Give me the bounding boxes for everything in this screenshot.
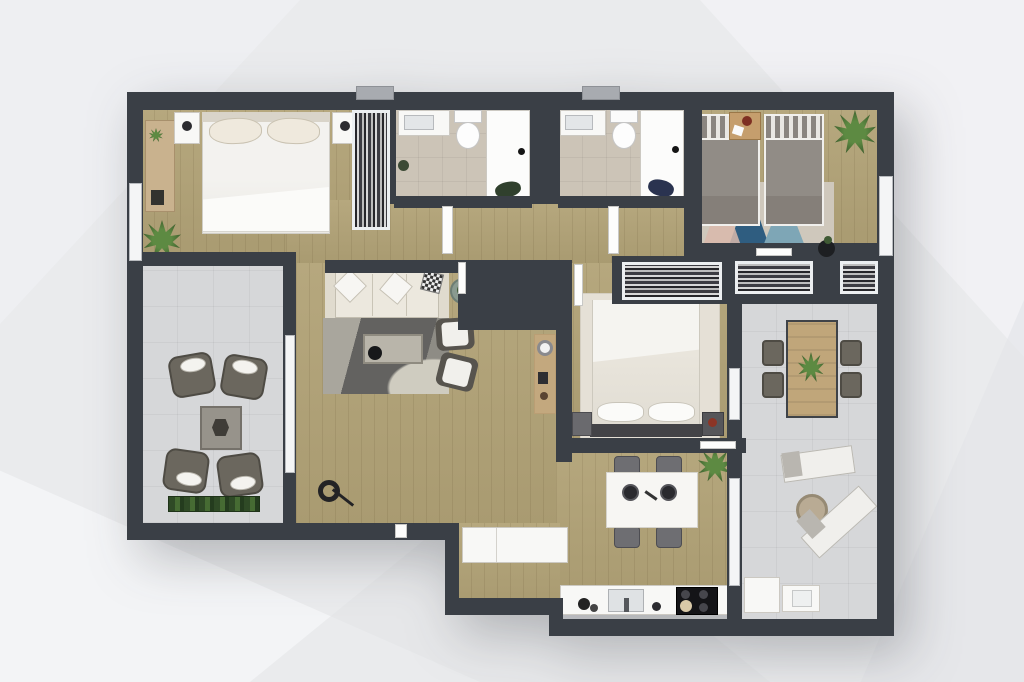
vent-window-tab <box>356 86 394 100</box>
appliance-unit <box>744 577 780 613</box>
wall-hall-block <box>458 260 572 330</box>
wall-kitchen-bottom-left <box>445 598 563 615</box>
pot-icon <box>680 600 692 612</box>
kitchen-peninsula <box>462 527 568 563</box>
window-midbedroom-terrace <box>729 368 740 420</box>
peninsula-seam <box>496 528 497 562</box>
shower-drain-icon <box>518 148 525 155</box>
outdoor-dining-chair <box>762 340 784 366</box>
sofa-armrest <box>325 270 336 318</box>
bed-blanket-fold <box>702 196 758 224</box>
nightstand <box>572 412 592 436</box>
wall-bath2-bottom <box>558 196 686 208</box>
dining-chair <box>656 526 682 548</box>
appliance-inner <box>792 590 812 607</box>
wall-wardrobe-side <box>390 108 396 204</box>
wall-bottom-main <box>549 619 894 636</box>
door-leaf-dining <box>700 441 736 449</box>
built-in-wardrobe <box>622 262 722 300</box>
coffee-table-bowl-icon <box>368 346 382 360</box>
wall-bath-divider <box>530 108 560 204</box>
bed-blanket-fold <box>766 196 822 224</box>
wall-bath1-bottom <box>394 196 532 208</box>
burner-icon <box>681 590 690 599</box>
wall-left <box>127 92 143 540</box>
headboard-cushion <box>764 114 824 140</box>
shower-drain-icon <box>672 146 679 153</box>
door-leaf-middle-bedroom <box>574 264 583 306</box>
nightstand-red-item <box>708 418 717 427</box>
lamp-icon <box>182 121 192 131</box>
place-setting-icon <box>660 484 677 501</box>
outdoor-dining-chair <box>762 372 784 398</box>
dining-table <box>606 472 698 528</box>
balcony-sliding-door <box>285 335 295 473</box>
vent-window-tab <box>582 86 620 100</box>
wall-living-top <box>325 260 460 273</box>
window-left-wall <box>129 183 142 261</box>
desk-item <box>151 190 164 205</box>
sofa-cushion-seam <box>372 274 373 316</box>
pillow <box>648 402 695 422</box>
faucet-icon <box>624 598 629 612</box>
wall-bottom-left <box>127 523 459 540</box>
wall-bath2-right <box>684 108 702 263</box>
wall-top <box>127 92 893 110</box>
door-notch-bottom <box>395 524 407 538</box>
lounger-headrest <box>781 451 802 478</box>
bed-headboard <box>590 424 702 437</box>
console-item <box>540 392 548 400</box>
counter-item <box>590 604 598 612</box>
sink-basin <box>404 115 434 130</box>
planter-box <box>168 496 260 512</box>
counter-item <box>578 598 590 610</box>
door-leaf-bathroom-2 <box>608 206 619 254</box>
terrace-sliding-door <box>729 478 740 586</box>
dining-chair <box>614 526 640 548</box>
console-item <box>538 372 548 384</box>
wall-right <box>877 92 894 636</box>
outdoor-dining-chair <box>840 372 862 398</box>
apartment-floor-plan <box>0 0 1024 682</box>
door-leaf-twin-bedroom <box>756 248 792 256</box>
pillow <box>267 117 321 145</box>
pillow <box>597 402 644 422</box>
wall-balcony-top <box>127 252 289 266</box>
bath-plant-icon <box>398 160 409 171</box>
toilet-bowl <box>612 122 636 149</box>
window-right-wall <box>879 176 893 256</box>
counter-item <box>652 602 661 611</box>
burner-icon <box>699 590 708 599</box>
console-mirror-icon <box>537 340 553 356</box>
outdoor-dining-chair <box>840 340 862 366</box>
table-figure <box>212 419 229 436</box>
toilet-bowl <box>456 122 480 149</box>
door-leaf-living-room <box>458 262 466 294</box>
lamp-icon <box>340 121 350 131</box>
outdoor-armchair <box>215 451 264 499</box>
door-leaf-bathroom-1 <box>442 206 453 254</box>
bedside-red-item <box>742 116 752 126</box>
corridor-vase-leaf <box>824 236 832 244</box>
burner-icon <box>699 603 708 612</box>
built-in-wardrobe <box>735 261 813 294</box>
floor-plan-scene <box>0 0 1024 682</box>
sink-basin <box>565 115 593 130</box>
built-in-wardrobe <box>840 261 878 294</box>
wall-midbedroom-left <box>556 260 572 462</box>
wardrobe-master <box>352 110 390 230</box>
place-setting-icon <box>622 484 639 501</box>
